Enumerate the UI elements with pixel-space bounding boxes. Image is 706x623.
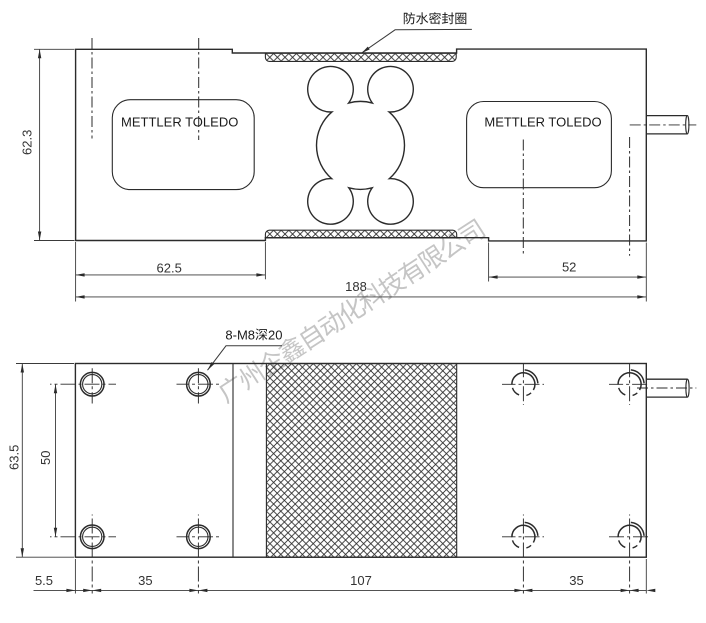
svg-text:METTLER TOLEDO: METTLER TOLEDO bbox=[484, 114, 601, 129]
svg-text:5.5: 5.5 bbox=[35, 573, 53, 588]
svg-text:35: 35 bbox=[569, 573, 583, 588]
svg-text:52: 52 bbox=[562, 259, 576, 274]
svg-text:8-M8: 8-M8 bbox=[225, 327, 255, 342]
svg-text:62.3: 62.3 bbox=[20, 130, 35, 155]
svg-text:50: 50 bbox=[38, 451, 53, 465]
svg-text:63.5: 63.5 bbox=[6, 445, 21, 470]
svg-text:188: 188 bbox=[345, 279, 367, 294]
svg-text:62.5: 62.5 bbox=[157, 260, 182, 275]
svg-text:107: 107 bbox=[350, 573, 372, 588]
svg-text:METTLER TOLEDO: METTLER TOLEDO bbox=[121, 114, 238, 129]
svg-text:20: 20 bbox=[268, 327, 282, 342]
svg-text:35: 35 bbox=[138, 573, 152, 588]
